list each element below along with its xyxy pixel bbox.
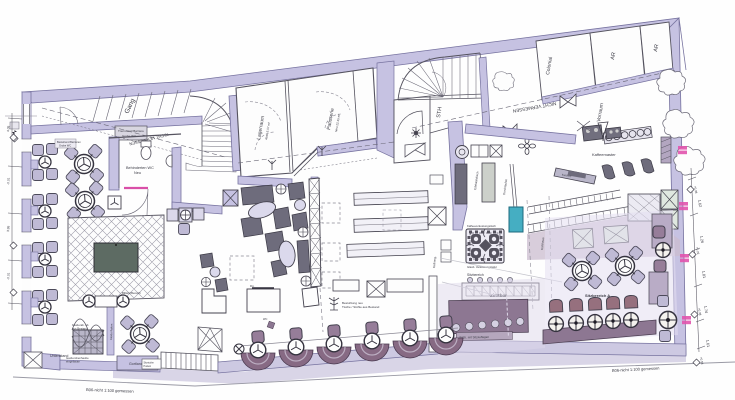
svg-text:-0.01: -0.01 xyxy=(6,272,11,280)
svg-text:Sitzb. mit Sitzauflagen: Sitzb. mit Sitzauflagen xyxy=(459,335,489,340)
svg-text:Podest: Podest xyxy=(144,365,152,368)
svg-text:-0.01: -0.01 xyxy=(6,177,11,185)
svg-text:Kaffeemaster: Kaffeemaster xyxy=(592,152,616,157)
svg-text:Sitzbereich: Sitzbereich xyxy=(467,273,484,277)
svg-text:aus Bestand: aus Bestand xyxy=(72,326,88,330)
svg-text:Kleiderhaken: Kleiderhaken xyxy=(109,323,114,340)
svg-text:Gortland: Gortland xyxy=(129,362,143,366)
svg-text:Billiard Bereich: Billiard Bereich xyxy=(122,291,141,295)
svg-text:Tische / Stühle aus Bestand: Tische / Stühle aus Bestand xyxy=(342,305,380,309)
svg-text:Bestehend Barrieren: Bestehend Barrieren xyxy=(57,140,81,144)
svg-text:4.05: 4.05 xyxy=(6,125,11,132)
svg-text:WC: WC xyxy=(263,317,267,321)
svg-text:3.95: 3.95 xyxy=(6,225,11,232)
svg-text:Grobe WC: Grobe WC xyxy=(59,144,71,148)
svg-text:Untenstand: Untenstand xyxy=(50,354,68,358)
svg-text:eingebaute: eingebaute xyxy=(66,360,80,364)
svg-text:Behinderten WC: Behinderten WC xyxy=(126,166,154,170)
svg-text:Flü.: Flü. xyxy=(250,284,255,288)
svg-text:Neu: Neu xyxy=(134,171,141,175)
svg-text:Kaffeeverkostungstisch: Kaffeeverkostungstisch xyxy=(467,224,496,228)
